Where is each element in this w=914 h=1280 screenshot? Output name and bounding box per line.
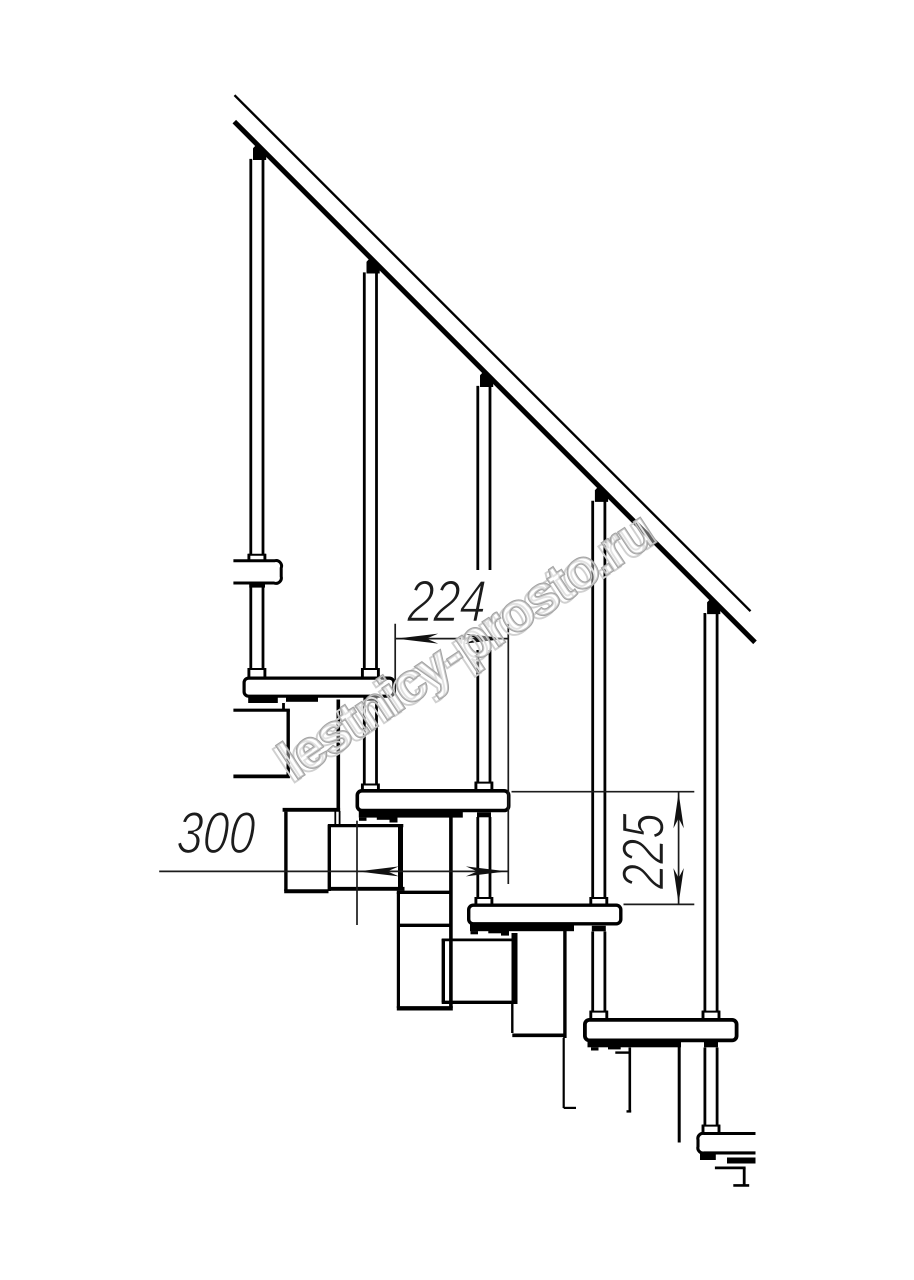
svg-text:300: 300	[175, 800, 257, 866]
svg-text:225: 225	[611, 813, 677, 890]
